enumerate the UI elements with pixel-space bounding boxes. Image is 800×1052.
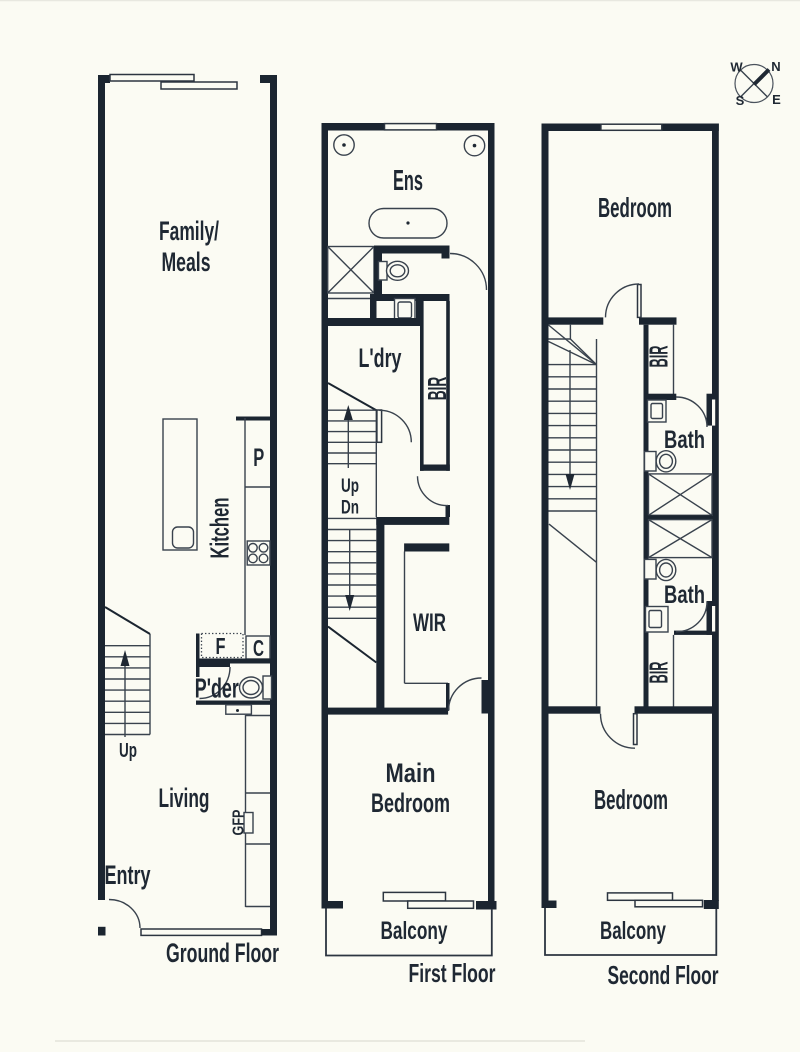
svg-text:L'dry: L'dry xyxy=(359,343,402,373)
svg-text:GFP: GFP xyxy=(230,809,247,835)
svg-text:WIR: WIR xyxy=(413,609,446,637)
svg-text:E: E xyxy=(772,92,781,107)
svg-text:Bath: Bath xyxy=(664,426,705,454)
svg-text:Main: Main xyxy=(386,758,436,788)
svg-text:Family/: Family/ xyxy=(159,216,219,246)
svg-text:Ens: Ens xyxy=(393,165,423,197)
svg-text:Second Floor: Second Floor xyxy=(608,960,719,990)
svg-text:Balcony: Balcony xyxy=(381,917,448,945)
svg-text:Kitchen: Kitchen xyxy=(205,498,235,559)
svg-text:Bedroom: Bedroom xyxy=(594,784,668,815)
svg-text:Up: Up xyxy=(119,740,137,762)
svg-text:S: S xyxy=(736,93,745,108)
svg-text:W: W xyxy=(730,60,743,75)
svg-text:BIR: BIR xyxy=(422,377,452,401)
svg-text:Living: Living xyxy=(159,783,210,813)
svg-text:First Floor: First Floor xyxy=(409,958,496,988)
svg-text:BIR: BIR xyxy=(643,345,673,367)
svg-text:Balcony: Balcony xyxy=(600,917,666,945)
svg-text:N: N xyxy=(771,59,780,74)
svg-text:P: P xyxy=(253,444,264,472)
svg-text:Ground Floor: Ground Floor xyxy=(166,938,279,968)
svg-text:Bedroom: Bedroom xyxy=(371,788,450,818)
svg-text:Dn: Dn xyxy=(341,498,359,519)
svg-text:Bedroom: Bedroom xyxy=(598,192,672,223)
svg-text:C: C xyxy=(253,635,264,661)
svg-text:P'der: P'der xyxy=(195,673,239,704)
svg-text:Entry: Entry xyxy=(105,860,151,890)
svg-text:Meals: Meals xyxy=(162,247,211,277)
svg-text:Bath: Bath xyxy=(664,581,705,609)
svg-text:F: F xyxy=(216,633,226,659)
svg-text:Up: Up xyxy=(341,476,359,497)
svg-text:BIR: BIR xyxy=(643,661,673,683)
